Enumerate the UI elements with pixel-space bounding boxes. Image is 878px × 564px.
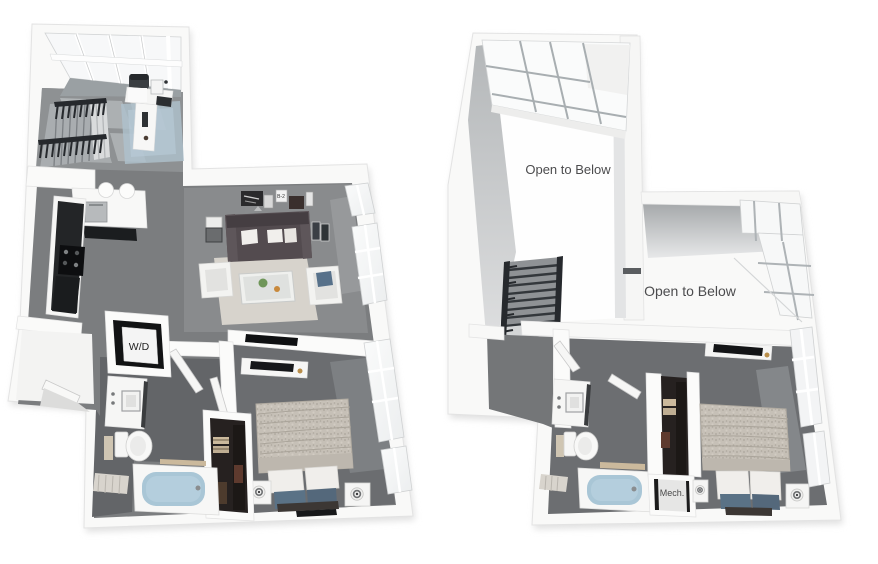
svg-text:W/D: W/D [129,341,150,353]
svg-text:Open to Below: Open to Below [525,162,611,177]
svg-text:B-2: B-2 [277,194,285,200]
svg-text:Mech.: Mech. [660,488,685,498]
svg-text:Open to Below: Open to Below [644,283,737,299]
